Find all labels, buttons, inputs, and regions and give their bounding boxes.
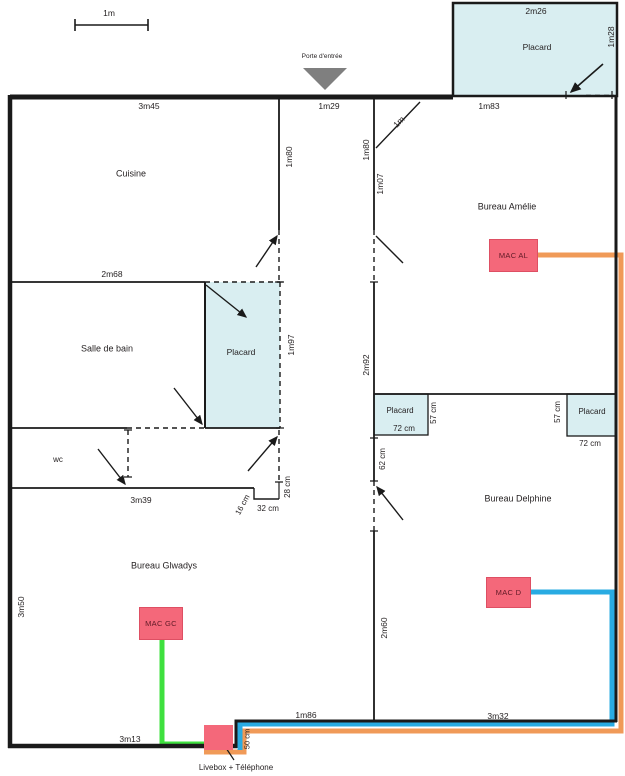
room-cuisine: Cuisine	[116, 170, 146, 179]
entrance-arrow-icon	[303, 68, 347, 90]
door-swing-wall-b-lower	[377, 487, 403, 520]
scale-bar	[75, 19, 148, 31]
dim-tr-closet-depth: 1m28	[607, 26, 616, 47]
door-swing-wc	[98, 449, 125, 484]
door-swing-wall-a	[256, 236, 277, 267]
door-swing-wall-b-upper	[376, 236, 403, 263]
room-bureau-amelie: Bureau Amélie	[478, 203, 537, 212]
dim-left-wall: 3m50	[17, 596, 26, 617]
dim-hall-closet-left-width: 72 cm	[393, 425, 415, 433]
hall-closet-left-label: Placard	[386, 407, 413, 415]
dim-bottom-mid-wall: 1m86	[295, 711, 316, 720]
room-wc: wc	[53, 456, 63, 464]
dim-entry-width: 1m29	[318, 102, 339, 111]
mac-al-device: MAC AL	[489, 239, 538, 272]
dim-step-depth: 50 cm	[243, 729, 251, 749]
nook-walls	[254, 488, 279, 499]
dim-corridor-gap: 62 cm	[379, 448, 387, 470]
dim-bathroom-wall: 2m68	[101, 270, 122, 279]
dim-bottom-right-wall: 3m32	[487, 712, 508, 721]
livebox-device	[204, 725, 233, 750]
dim-wc-wall: 3m39	[130, 496, 151, 505]
floor-plan-drawing	[0, 0, 625, 776]
dim-wall-a: 1m80	[285, 146, 294, 167]
floor-plan: 1m Porte d'entrée 2m26 Placard 1m28 1m83…	[0, 0, 625, 776]
mac-al-label: MAC AL	[499, 251, 528, 260]
door-swing-bathroom	[174, 388, 202, 424]
room-salle-de-bain: Salle de bain	[81, 345, 133, 354]
room-bureau-glwadys: Bureau Glwadys	[131, 562, 197, 571]
dim-hall-closet-right-width: 72 cm	[579, 440, 601, 448]
dim-kitchen-top: 3m45	[138, 102, 159, 111]
dim-corridor-upper: 2m92	[362, 354, 371, 375]
blue-cable-mac-d	[240, 592, 612, 750]
mac-d-device: MAC D	[486, 577, 531, 608]
dim-hall-closet-left-depth: 57 cm	[430, 402, 438, 424]
dim-hall-closet-right-depth: 57 cm	[554, 401, 562, 423]
dim-tr-closet-width: 2m26	[525, 7, 546, 16]
closet-fills	[205, 3, 617, 436]
hall-closet-right-label: Placard	[578, 408, 605, 416]
bathroom-closet-label: Placard	[227, 348, 256, 357]
dim-corridor-lower: 2m60	[380, 617, 389, 638]
dim-bottom-left-wall: 3m13	[119, 735, 140, 744]
dim-bathroom-closet-depth: 1m97	[287, 334, 296, 355]
dim-wall-b-lower: 1m07	[376, 173, 385, 194]
dim-wall-b-upper: 1m80	[362, 139, 371, 160]
scale-bar-label: 1m	[103, 9, 115, 18]
dim-nook-depth: 28 cm	[284, 476, 292, 498]
outer-walls	[8, 95, 617, 748]
room-bureau-delphine: Bureau Delphine	[484, 495, 551, 504]
wall-a	[256, 97, 283, 282]
mac-gc-label: MAC GC	[145, 619, 177, 628]
tr-closet-label: Placard	[523, 43, 552, 52]
wc-walls	[8, 428, 283, 499]
dim-tr-closet-front: 1m83	[478, 102, 499, 111]
mac-gc-device: MAC GC	[139, 607, 183, 640]
door-swing-hall	[248, 437, 277, 471]
entrance-label: Porte d'entrée	[302, 54, 343, 61]
mac-d-label: MAC D	[496, 588, 522, 597]
dim-nook-width: 32 cm	[257, 505, 279, 513]
livebox-label: Livebox + Téléphone	[199, 764, 273, 772]
